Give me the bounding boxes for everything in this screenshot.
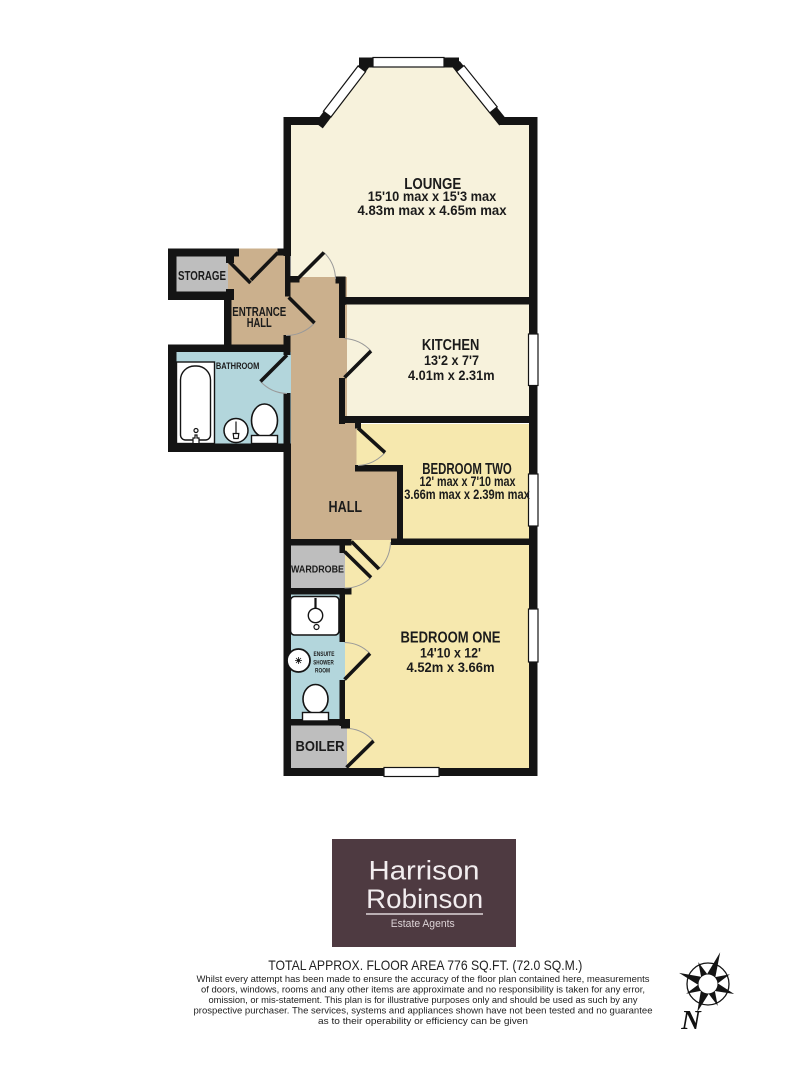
- svg-text:Robinson: Robinson: [366, 884, 483, 914]
- svg-text:WARDROBE: WARDROBE: [291, 565, 344, 576]
- svg-text:ROOM: ROOM: [315, 668, 330, 675]
- svg-text:STORAGE: STORAGE: [178, 269, 226, 283]
- svg-text:Whilst every attempt has been: Whilst every attempt has been made to en…: [197, 974, 650, 985]
- svg-text:BOILER: BOILER: [296, 738, 345, 755]
- svg-text:prospective purchaser. The ser: prospective purchaser. The services, sys…: [194, 1006, 653, 1017]
- svg-text:SHOWER: SHOWER: [313, 660, 334, 667]
- svg-text:3.66m max x 2.39m max: 3.66m max x 2.39m max: [404, 486, 530, 502]
- svg-text:TOTAL APPROX. FLOOR AREA 776 S: TOTAL APPROX. FLOOR AREA 776 SQ.FT. (72.…: [268, 957, 582, 973]
- svg-text:N: N: [680, 1005, 702, 1035]
- svg-text:as to their operability or eff: as to their operability or efficiency ca…: [318, 1016, 528, 1027]
- svg-text:Harrison: Harrison: [369, 856, 480, 886]
- svg-text:ENSUITE: ENSUITE: [314, 651, 335, 658]
- svg-text:BATHROOM: BATHROOM: [216, 361, 260, 371]
- svg-text:omission, or mis-statement. Th: omission, or mis-statement. This plan is…: [209, 995, 638, 1006]
- svg-text:4.52m x 3.66m: 4.52m x 3.66m: [407, 659, 495, 675]
- svg-text:4.83m max x 4.65m max: 4.83m max x 4.65m max: [358, 202, 507, 218]
- svg-text:HALL: HALL: [247, 316, 272, 330]
- svg-text:13'2 x 7'7: 13'2 x 7'7: [424, 352, 479, 368]
- svg-text:4.01m x 2.31m: 4.01m x 2.31m: [408, 367, 495, 383]
- svg-text:of doors, windows, rooms and a: of doors, windows, rooms and any other i…: [201, 985, 645, 996]
- svg-text:Estate Agents: Estate Agents: [391, 918, 455, 930]
- svg-text:HALL: HALL: [329, 499, 363, 516]
